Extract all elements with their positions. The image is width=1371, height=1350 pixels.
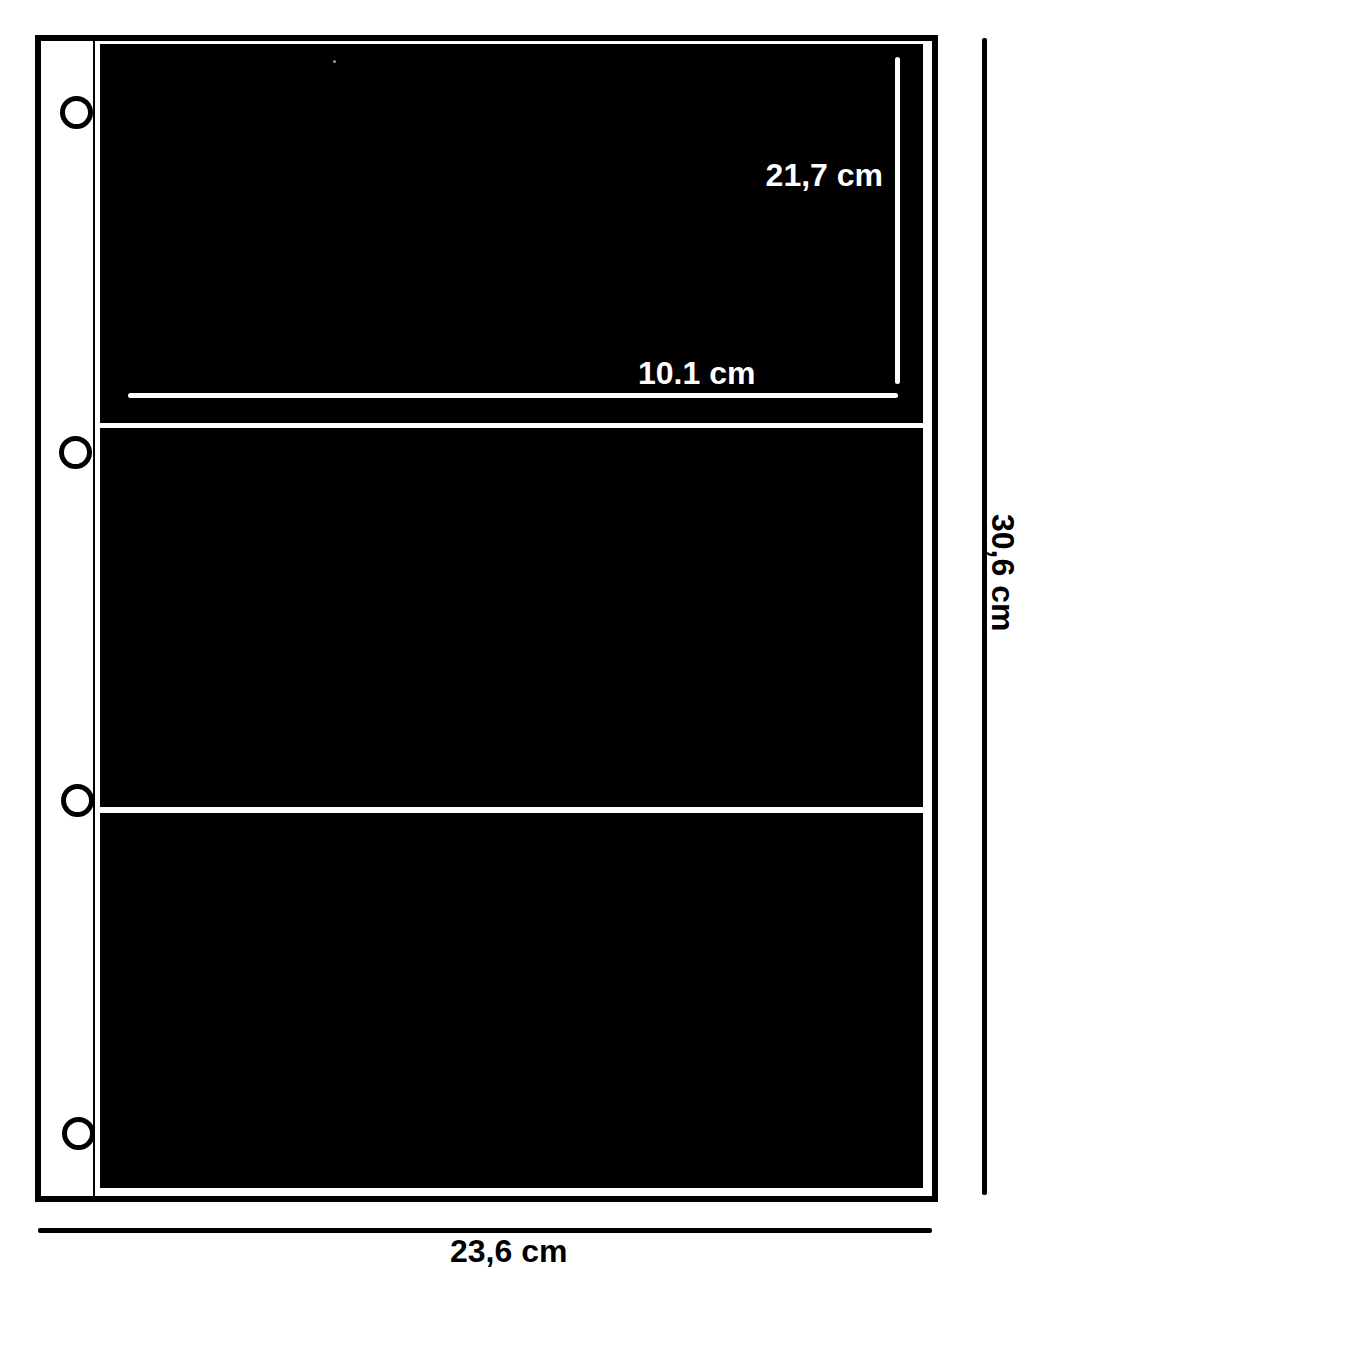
punch-hole-icon (62, 1117, 95, 1150)
dimension-diagram-canvas: 21,7 cm 10.1 cm 30,6 cm 23,6 cm (0, 0, 1371, 1350)
pocket-height-measure-line (895, 57, 900, 384)
punch-hole-icon (59, 436, 92, 469)
punch-hole-icon (60, 96, 93, 129)
pocket-width-label: 10.1 cm (638, 356, 755, 390)
pocket-height-label: 21,7 cm (700, 158, 883, 192)
pocket-middle (100, 428, 923, 807)
punch-hole-icon (61, 784, 94, 817)
pocket-width-measure-line (128, 393, 898, 398)
dust-speck (333, 60, 336, 63)
pocket-bottom (100, 813, 923, 1188)
binder-strip-divider-line (93, 41, 95, 1196)
pocket-top (100, 44, 923, 423)
page-width-label: 23,6 cm (450, 1234, 567, 1268)
page-height-label: 30,6 cm (986, 514, 1020, 642)
